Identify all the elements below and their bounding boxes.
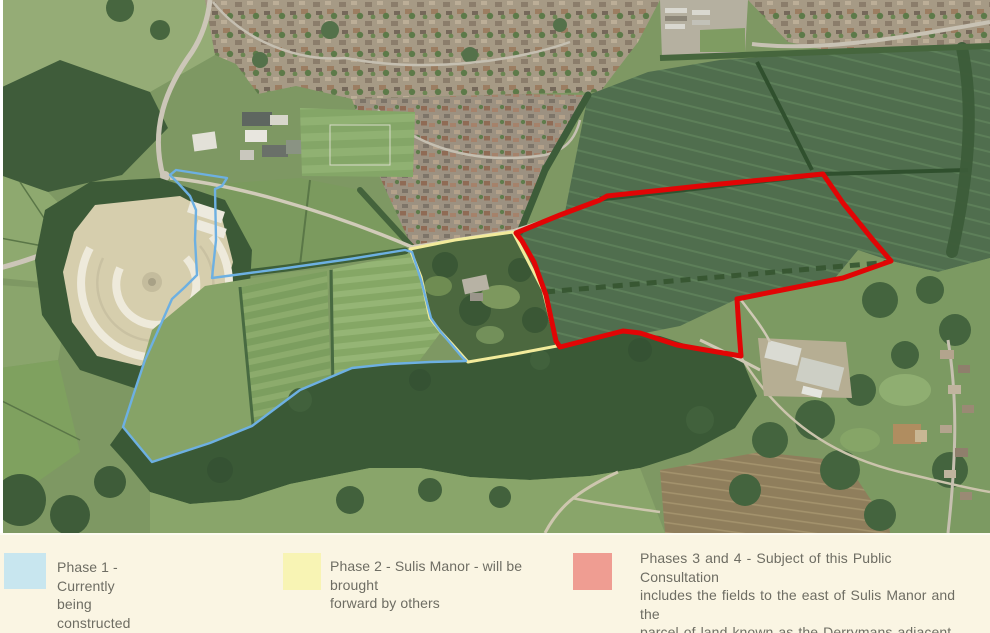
aerial-map [0, 0, 990, 533]
terrain [0, 0, 990, 533]
legend-line: parcel of land known as the Derrymans ad… [640, 623, 970, 633]
legend: Phase 1 - Currently being constructed Ph… [0, 533, 990, 633]
phases-3-4-swatch [573, 553, 612, 590]
legend-line: Phases 3 and 4 - Subject of this Public … [640, 549, 970, 586]
scan-edge [0, 0, 3, 533]
phase-1-swatch [4, 553, 46, 589]
consultation-map-page: Phase 1 - Currently being constructed Ph… [0, 0, 990, 633]
legend-line: includes the fields to the east of Sulis… [640, 586, 970, 623]
phase-1-label: Phase 1 - Currently being constructed [57, 558, 130, 632]
phase-2-label: Phase 2 - Sulis Manor - will be brought … [330, 557, 570, 613]
phase-2-swatch [283, 553, 321, 590]
village-housing [205, 0, 660, 99]
legend-line: forward by others [330, 594, 570, 613]
phases-3-4-label: Phases 3 and 4 - Subject of this Public … [640, 549, 970, 633]
legend-line: Phase 2 - Sulis Manor - will be brought [330, 557, 570, 594]
legend-line: Phase 1 - Currently being constructed [57, 558, 130, 632]
